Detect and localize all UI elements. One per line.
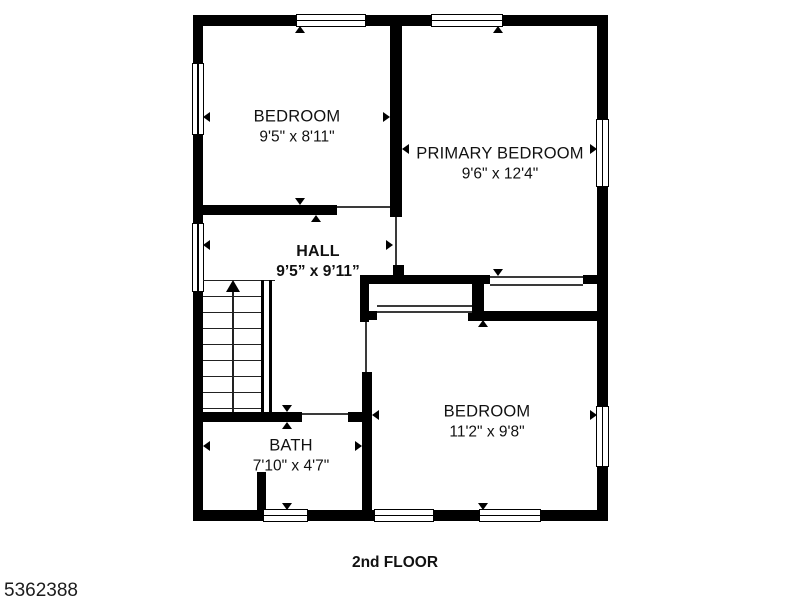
measurement-tick-icon	[478, 503, 488, 510]
measurement-tick-icon	[203, 441, 210, 451]
floor-label: 2nd FLOOR	[352, 554, 438, 572]
door-hall-bath	[302, 413, 348, 415]
measurement-tick-icon	[493, 26, 503, 33]
door-bedroom1-hall	[337, 206, 390, 208]
room-label-bedroom-bottom: BEDROOM 11'2" x 9'8"	[444, 402, 531, 443]
measurement-tick-icon	[493, 269, 503, 276]
floor-plan: BEDROOM 9'5" x 8'11" PRIMARY BEDROOM 9'6…	[0, 0, 800, 600]
room-dimensions: 9'6" x 12'4"	[416, 165, 583, 185]
measurement-tick-icon	[372, 410, 379, 420]
room-name: HALL	[276, 242, 360, 262]
measurement-tick-icon	[383, 112, 390, 122]
room-name: BEDROOM	[444, 402, 531, 423]
stairs-up-arrow-icon	[232, 289, 234, 412]
measurement-tick-icon	[590, 410, 597, 420]
measurement-tick-icon	[590, 144, 597, 154]
room-label-hall: HALL 9’5” x 9’11”	[276, 242, 360, 282]
stair-railing-line	[261, 280, 264, 412]
wall-closet-left-stub	[368, 311, 377, 320]
measurement-tick-icon	[295, 198, 305, 205]
room-label-bath: BATH 7'10" x 4'7"	[253, 436, 329, 477]
room-dimensions: 9'5" x 8'11"	[254, 128, 341, 148]
window-bedroom3-right	[596, 406, 609, 467]
wall-primary-bottom-stub	[583, 275, 599, 284]
window-bedroom1-left	[192, 63, 204, 135]
room-name: BATH	[253, 436, 329, 457]
measurement-tick-icon	[478, 320, 488, 327]
door-hall-bedroom3	[365, 322, 367, 372]
wall-bedroom3-left	[362, 372, 372, 512]
measurement-tick-icon	[355, 441, 362, 451]
wall-bedroom3-top	[468, 311, 608, 321]
window-primary-right	[596, 119, 609, 187]
window-bath-bottom	[263, 509, 308, 522]
stair-railing-line	[269, 280, 272, 412]
room-dimensions: 9’5” x 9’11”	[276, 262, 360, 282]
room-label-bedroom-top-left: BEDROOM 9'5" x 8'11"	[254, 107, 341, 148]
room-dimensions: 7'10" x 4'7"	[253, 457, 329, 477]
listing-id: 5362388	[4, 580, 78, 600]
wall-bedroom1-bottom	[196, 205, 337, 215]
room-label-primary-bedroom: PRIMARY BEDROOM 9'6" x 12'4"	[416, 144, 583, 185]
window-bedroom3-bottom-left	[374, 509, 434, 522]
door-primary-closet-bottom	[490, 284, 583, 286]
measurement-tick-icon	[203, 112, 210, 122]
wall-bath-top-stub	[348, 412, 372, 422]
wall-closet-right	[472, 275, 484, 315]
stairs-up-arrow-icon	[226, 280, 240, 292]
wall-bath-top	[196, 412, 302, 422]
measurement-tick-icon	[282, 503, 292, 510]
window-bedroom3-bottom-right	[479, 509, 541, 522]
measurement-tick-icon	[203, 240, 210, 250]
room-dimensions: 11'2" x 9'8"	[444, 423, 531, 443]
window-bedroom1-top	[296, 14, 366, 27]
wall-outer-top	[193, 15, 608, 26]
wall-bedroom-primary-divider	[390, 26, 402, 217]
measurement-tick-icon	[386, 240, 393, 250]
floorplan-page: BEDROOM 9'5" x 8'11" PRIMARY BEDROOM 9'6…	[0, 0, 800, 600]
measurement-tick-icon	[282, 422, 292, 429]
door-primary-closet-top	[490, 276, 583, 278]
door-primary-hall	[395, 217, 397, 265]
closet-sliding-door-top	[377, 305, 472, 307]
measurement-tick-icon	[295, 26, 305, 33]
closet-sliding-door-bottom	[377, 311, 472, 313]
room-name: PRIMARY BEDROOM	[416, 144, 583, 165]
measurement-tick-icon	[311, 215, 321, 222]
room-name: BEDROOM	[254, 107, 341, 128]
wall-primary-bottom	[360, 275, 490, 284]
staircase	[203, 280, 275, 412]
measurement-tick-icon	[402, 144, 409, 154]
measurement-tick-icon	[282, 405, 292, 412]
wall-bath-partition	[257, 472, 266, 512]
